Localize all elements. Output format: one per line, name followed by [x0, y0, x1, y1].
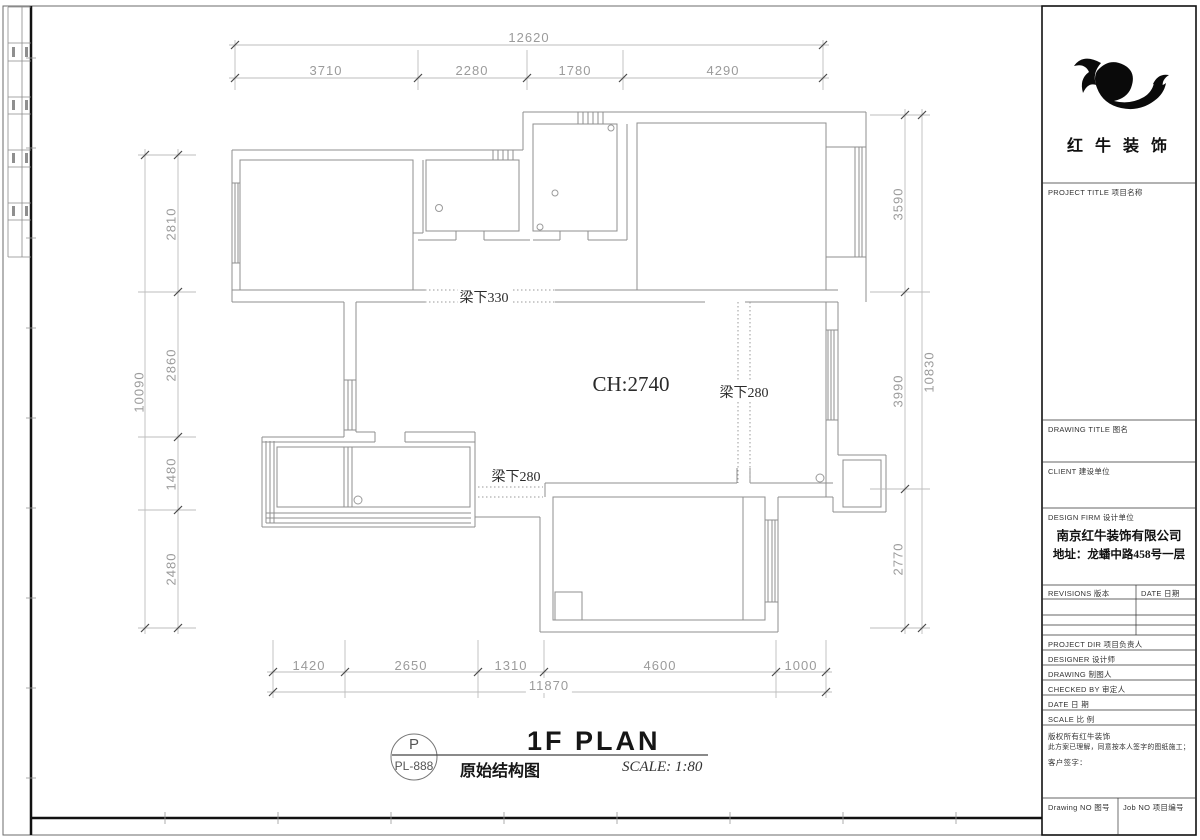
dim-top-seg-2: 2280	[456, 63, 489, 78]
sheet-frame	[3, 6, 1196, 835]
dim-bottom-seg-4: 4600	[644, 658, 677, 673]
design-firm-label: DESIGN FIRM 设计单位	[1048, 512, 1134, 523]
drawing-label: DRAWING 制图人	[1048, 669, 1112, 680]
dim-bottom-seg-1: 1420	[293, 658, 326, 673]
dim-right-seg-2: 3990	[891, 375, 906, 408]
drawing-no-label: Drawing NO 图号	[1048, 802, 1110, 813]
dim-bottom-seg-5: 1000	[785, 658, 818, 673]
designer-label: DESIGNER 设计师	[1048, 654, 1115, 665]
dim-right-seg-3: 2770	[891, 543, 906, 576]
date-label: DATE 日 期	[1048, 699, 1089, 710]
scale-label: SCALE 比 例	[1048, 714, 1094, 725]
company-logo-name: 红 牛 装 饰	[1067, 132, 1171, 156]
dim-right-total: 10830	[922, 351, 937, 392]
checked-by-label: CHECKED BY 审定人	[1048, 684, 1125, 695]
bubble-code: PL-888	[395, 759, 434, 773]
company-name: 南京红牛装饰有限公司	[1056, 525, 1181, 544]
project-title-label: PROJECT TITLE 项目名称	[1048, 187, 1143, 198]
dim-left-seg-2: 2860	[164, 349, 179, 382]
beam-330-label: 梁下330	[458, 287, 511, 307]
dim-left-total: 10090	[132, 371, 147, 412]
dimension-lines	[138, 40, 930, 698]
scale-note: SCALE: 1:80	[622, 759, 702, 776]
frame-reference-ticks	[26, 58, 956, 824]
company-logo-bull-icon	[1074, 59, 1169, 109]
dim-right-seg-1: 3590	[891, 188, 906, 221]
date-col-label: DATE 日期	[1141, 588, 1180, 599]
dim-top-seg-4: 4290	[707, 63, 740, 78]
dim-bottom-seg-3: 1310	[495, 658, 528, 673]
dim-left-seg-4: 2480	[164, 553, 179, 586]
dim-top-total: 12620	[508, 30, 549, 45]
cad-linework	[0, 0, 1200, 840]
dim-bottom-seg-2: 2650	[395, 658, 428, 673]
company-address: 地址：龙蟠中路458号一层	[1053, 546, 1185, 562]
bubble-letter: P	[409, 736, 419, 753]
left-strip-glyph-marks	[12, 47, 28, 216]
client-sign-label: 客户签字：	[1048, 757, 1087, 768]
revisions-label: REVISIONS 版本	[1048, 588, 1110, 599]
drawing-title-label: DRAWING TITLE 图名	[1048, 424, 1128, 435]
job-no-label: Job NO 项目编号	[1123, 802, 1184, 813]
dim-left-seg-3: 1480	[164, 458, 179, 491]
dim-top-seg-3: 1780	[559, 63, 592, 78]
ceiling-height-label: CH:2740	[590, 372, 671, 397]
dim-left-seg-1: 2810	[164, 208, 179, 241]
dim-bottom-total: 11870	[526, 678, 572, 693]
beam-280-label-b: 梁下280	[490, 466, 543, 486]
plan-subtitle: 原始结构图	[460, 757, 540, 781]
plan-title: 1F PLAN	[527, 726, 661, 757]
drawing-sheet: 12620 3710 2280 1780 4290 10090 2810 286…	[0, 0, 1200, 840]
left-strip-table	[8, 7, 31, 257]
client-label: CLIENT 建设单位	[1048, 466, 1110, 477]
plan-walls	[232, 112, 886, 632]
title-block-grid	[1042, 6, 1196, 835]
project-dir-label: PROJECT DIR 项目负责人	[1048, 639, 1143, 650]
beam-dotted-lines	[425, 290, 750, 497]
dim-top-seg-1: 3710	[310, 63, 343, 78]
copyright-line2: 此方案已理解，同意按本人签字的图纸施工；	[1048, 741, 1190, 751]
beam-280-label-a: 梁下280	[718, 382, 771, 402]
